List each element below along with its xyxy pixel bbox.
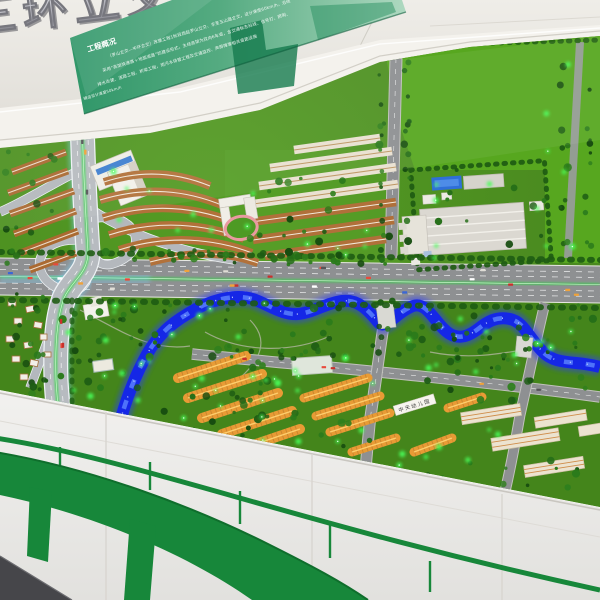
- exhibition-photo: 三环立交文 三环立交文 工程概况 （罗山立交—中环立交）改建工程1标段西起罗山立…: [0, 0, 600, 600]
- park-building-center: [291, 356, 332, 376]
- school-block: [218, 193, 260, 242]
- model-scene: 三环立交文 三环立交文 工程概况 （罗山立交—中环立交）改建工程1标段西起罗山立…: [0, 0, 600, 600]
- park-building-west: [92, 359, 113, 373]
